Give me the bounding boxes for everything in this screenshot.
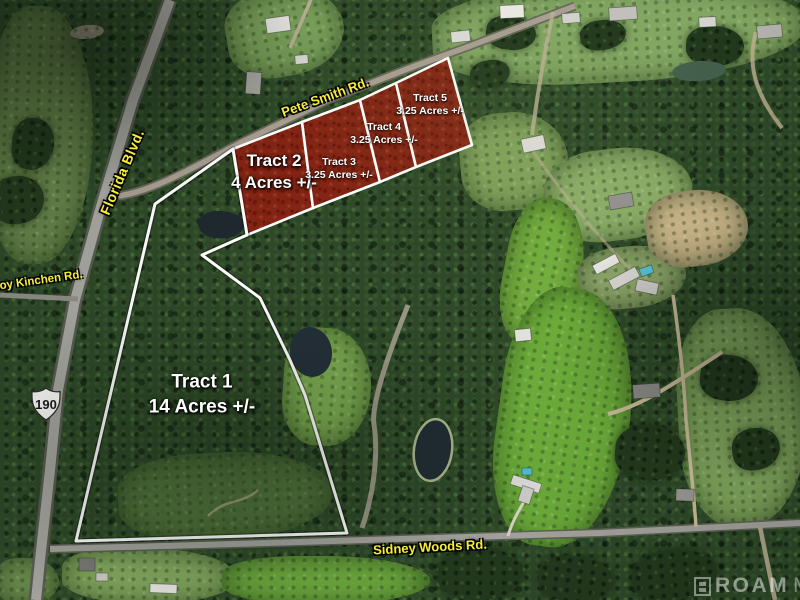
map-overlay-graphics: 190 [0,0,800,600]
pond-east [410,417,456,484]
watermark-suffix: MLS [793,574,800,598]
tract-4-name: Tract 4 [350,121,418,134]
tract-4-label: Tract 4 3.25 Acres +/- [350,121,418,147]
tract-3-acreage: 3.25 Acres +/- [305,169,373,182]
pond-west [198,211,244,238]
tract-5-acreage: 3.25 Acres +/- [396,105,464,118]
tract-2-name: Tract 2 [231,150,317,172]
route-number: 190 [35,397,57,412]
aerial-tract-map: 190 Tract 1 14 Acres +/- Tract 2 4 Acres… [0,0,800,600]
pond-top-right [671,59,726,83]
tract-5-name: Tract 5 [396,92,464,105]
tract-4-acreage: 3.25 Acres +/- [350,134,418,147]
tract-3-label: Tract 3 3.25 Acres +/- [305,156,373,182]
tract-5-label: Tract 5 3.25 Acres +/- [396,92,464,118]
roam-logo-icon [694,577,711,596]
tract-2-label: Tract 2 4 Acres +/- [231,150,317,194]
tract-1-label: Tract 1 14 Acres +/- [149,370,256,419]
watermark-brand: ROAM [715,574,789,598]
tract-3-name: Tract 3 [305,156,373,169]
tract-2-acreage: 4 Acres +/- [231,172,317,194]
coy-kinchen-road [0,295,78,299]
tract-1-acreage: 14 Acres +/- [149,395,256,420]
driveways [208,0,782,600]
tract-1-name: Tract 1 [149,370,256,395]
watermark: ROAMMLS [694,574,800,598]
